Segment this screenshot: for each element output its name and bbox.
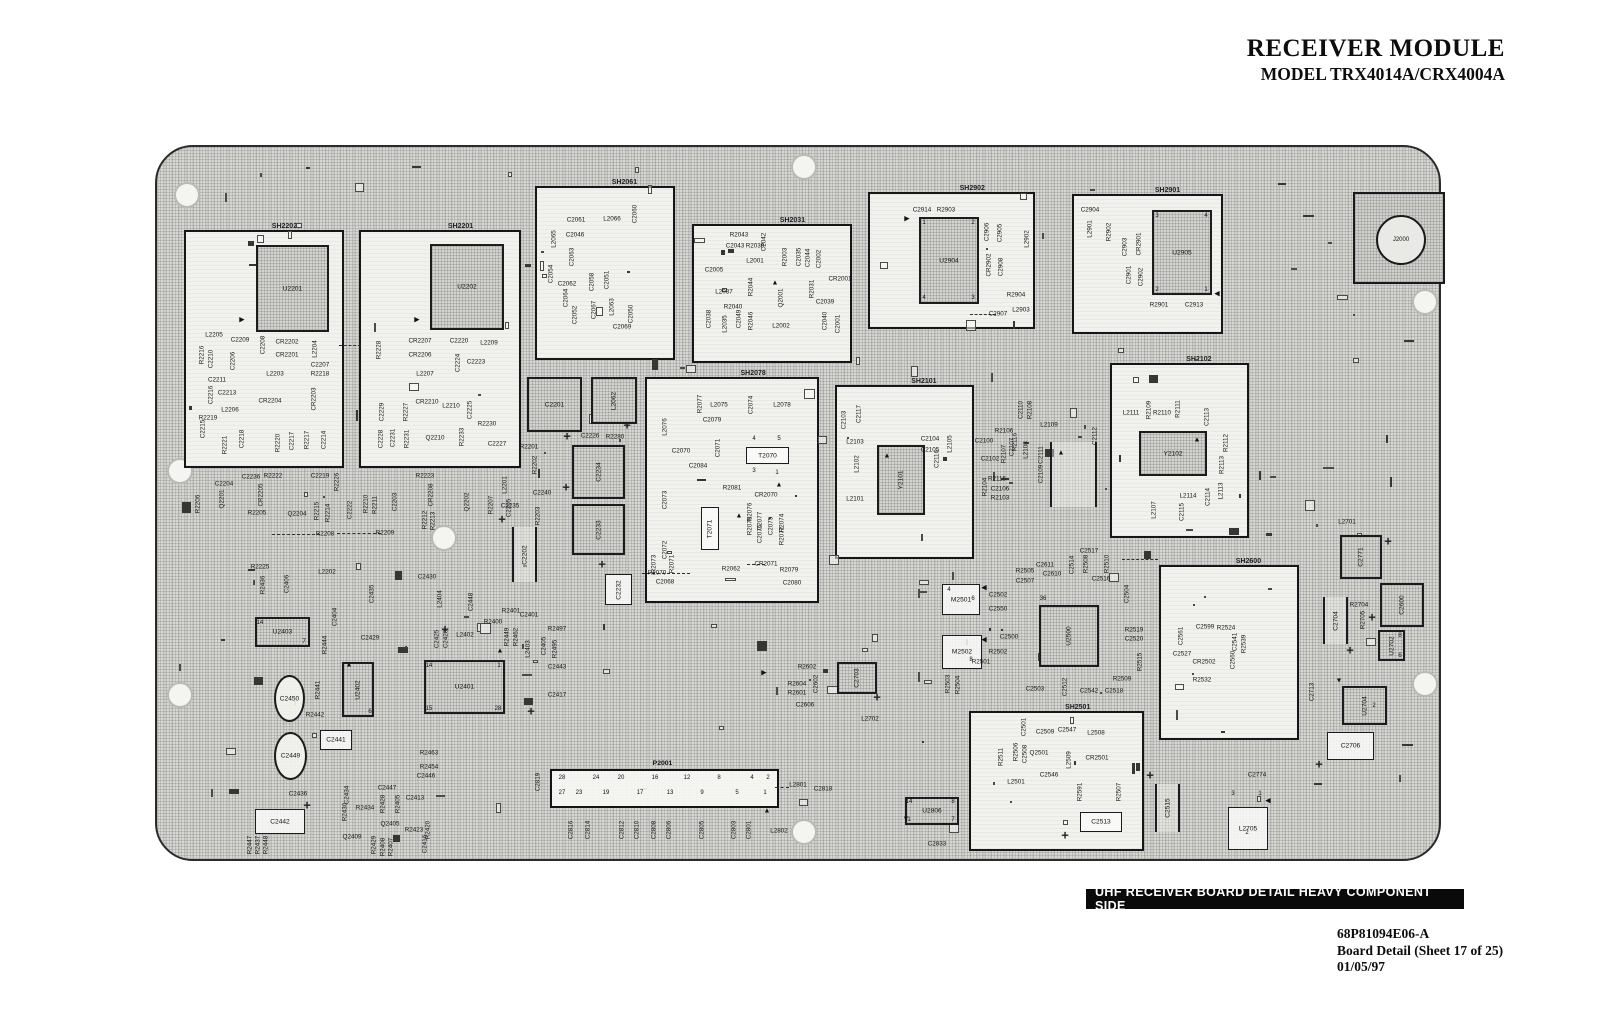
part-outline xyxy=(919,580,929,585)
label-c2213: C2213 xyxy=(218,390,237,397)
orientation-mark: ◀ xyxy=(1214,291,1219,298)
C2232-outline: C2232 xyxy=(605,574,632,605)
label-c2517: C2517 xyxy=(1080,548,1099,555)
label-r2201: R2201 xyxy=(520,444,539,451)
label-c2236: C2236 xyxy=(242,474,261,481)
label-l2105: L2105 xyxy=(947,435,954,453)
label-cr2501: CR2501 xyxy=(1085,755,1108,762)
label-l2203: L2203 xyxy=(266,371,284,378)
part-outline xyxy=(374,323,376,332)
label-c2441: C2441 xyxy=(326,737,345,744)
pin-number: 4 xyxy=(752,436,755,442)
pin-number: 27 xyxy=(559,790,566,796)
label-l2111: L2111 xyxy=(1123,410,1140,417)
part-outline xyxy=(260,173,262,177)
label-c2043: C2043 xyxy=(726,243,745,250)
label-r2444: R2444 xyxy=(322,636,329,655)
pin-number: 8 xyxy=(951,799,954,805)
label-c2406: C2406 xyxy=(284,575,291,594)
polarity-mark: + xyxy=(1368,610,1376,625)
part-outline xyxy=(1259,471,1261,480)
part-outline xyxy=(921,534,923,541)
label-c2240: C2240 xyxy=(533,490,552,497)
orientation-mark: ▲ xyxy=(1194,437,1201,444)
dashed-trace xyxy=(272,534,320,535)
label-r2031: R2031 xyxy=(809,280,816,299)
label-r2519: R2519 xyxy=(1125,627,1144,634)
part-outline xyxy=(1136,763,1140,771)
label-r2217: R2217 xyxy=(304,431,311,450)
part-outline xyxy=(1144,551,1152,559)
label-r2046: R2046 xyxy=(748,312,755,331)
polarity-mark: + xyxy=(598,557,606,572)
part-outline xyxy=(719,726,723,731)
label-r2904: R2904 xyxy=(1007,292,1026,299)
label-c2512: C2512 xyxy=(1062,678,1069,697)
part-outline xyxy=(1186,529,1193,531)
label-c2042: C2042 xyxy=(761,233,768,252)
label-c2542: C2542 xyxy=(1080,688,1099,695)
label-c2442: C2442 xyxy=(270,818,289,825)
label-c2049: C2049 xyxy=(736,310,743,329)
label-r2106: R2106 xyxy=(995,428,1014,435)
label-r2215: R2215 xyxy=(314,502,321,521)
label-l2403: L2403 xyxy=(525,640,532,658)
part-outline xyxy=(757,641,767,650)
label-r2524: R2524 xyxy=(1217,625,1236,632)
label-r2207: R2207 xyxy=(488,496,495,515)
pin-number: 1 xyxy=(763,790,766,796)
label-c2527: C2527 xyxy=(1173,651,1192,658)
part-outline xyxy=(911,366,918,377)
label-c2100: C2100 xyxy=(975,438,994,445)
label-q2501: Q2501 xyxy=(1030,750,1049,757)
part-outline xyxy=(804,389,814,398)
label-c2233: C2233 xyxy=(595,520,602,539)
label-q2409: Q2409 xyxy=(343,834,362,841)
label-l2114: L2114 xyxy=(1179,493,1196,500)
label-l2103: L2103 xyxy=(846,439,864,446)
pin-number: 13 xyxy=(667,790,674,796)
part-outline xyxy=(544,452,546,454)
mounting-hole xyxy=(1412,671,1438,697)
shield-label: SH2600 xyxy=(1236,558,1261,565)
label-c2210: C2210 xyxy=(208,350,215,369)
part-outline xyxy=(697,479,706,481)
dashed-trace xyxy=(339,345,361,346)
label-r2428: R2428 xyxy=(380,795,387,814)
label-c2102: C2102 xyxy=(981,456,1000,463)
label-r2081: R2081 xyxy=(723,485,742,492)
shield-label: SH2202 xyxy=(272,223,297,230)
label-r2601: R2601 xyxy=(788,690,807,697)
part-outline xyxy=(304,492,308,498)
label-cr2207: CR2207 xyxy=(408,338,431,345)
orientation-mark: ▲ xyxy=(497,648,504,655)
label-l2037: L2037 xyxy=(715,289,733,296)
shield-label: SH2031 xyxy=(780,217,805,224)
caption-bar: UHF RECEIVER BOARD DETAIL HEAVY COMPONEN… xyxy=(1086,889,1464,909)
C2201-outline: C2201 xyxy=(527,377,582,432)
part-outline xyxy=(1090,189,1096,191)
orientation-mark: ▶ xyxy=(239,317,244,324)
label-l2065: L2065 xyxy=(551,230,558,248)
part-outline xyxy=(1303,215,1314,217)
label-t2071: T2071 xyxy=(707,519,714,538)
part-outline xyxy=(635,167,639,173)
label-c2901: C2901 xyxy=(1126,266,1133,285)
label-c2229: C2229 xyxy=(379,403,386,422)
pin-number: 28 xyxy=(495,706,502,712)
part-outline xyxy=(1266,533,1272,536)
label-r2216: R2216 xyxy=(199,346,206,365)
part-outline xyxy=(306,167,309,169)
C2513-outline: C2513 xyxy=(1080,812,1122,832)
pin-number: 3 xyxy=(1231,791,1234,797)
polarity-mark: + xyxy=(1384,534,1392,549)
part-outline xyxy=(226,748,236,754)
label-r2104: R2104 xyxy=(982,478,989,497)
part-outline xyxy=(652,359,658,370)
label-c2904: C2904 xyxy=(1081,207,1100,214)
part-outline xyxy=(1239,494,1241,498)
U2500-outline: U2500 xyxy=(1039,605,1099,667)
C2600-outline: C2600 xyxy=(1380,583,1424,627)
part-outline xyxy=(1268,588,1272,590)
C2202-outline: C2202 xyxy=(512,527,537,582)
pin-number: 4 xyxy=(750,775,753,781)
label-c2771: C2771 xyxy=(1358,547,1365,566)
pin-number: 1 xyxy=(922,220,925,226)
pin-number: 24 xyxy=(593,775,600,781)
pin-number: 8 xyxy=(1398,633,1401,639)
label-c2079: C2079 xyxy=(703,417,722,424)
label-c2050: C2050 xyxy=(628,305,635,324)
part-outline xyxy=(254,677,263,685)
label-r2203: R2203 xyxy=(535,507,542,526)
label-r2206: R2206 xyxy=(195,495,202,514)
part-outline xyxy=(412,166,421,168)
label-q2202: Q2202 xyxy=(464,493,471,512)
mounting-hole xyxy=(791,819,817,845)
label-c2228: C2228 xyxy=(378,430,385,449)
part-outline xyxy=(1328,242,1332,244)
antenna-jack-outline: J2000 xyxy=(1353,192,1445,284)
label-c2703: C2703 xyxy=(854,668,861,687)
label-c2235: C2235 xyxy=(501,503,520,510)
label-r2508: R2508 xyxy=(1083,555,1090,574)
part-outline xyxy=(880,262,888,269)
label-c2416: C2416 xyxy=(422,835,429,854)
label-r2430: R2430 xyxy=(342,803,349,822)
label-c2547: C2547 xyxy=(1058,727,1077,734)
part-outline xyxy=(189,406,192,410)
label-r2222: R2222 xyxy=(264,473,283,480)
label-r2405: R2405 xyxy=(395,795,402,814)
label-r2423: R2423 xyxy=(405,827,424,834)
pin-number: 5 xyxy=(735,790,738,796)
part-outline xyxy=(818,436,827,444)
part-outline xyxy=(1404,340,1414,342)
label-c2206: C2206 xyxy=(230,352,237,371)
label-r2210: R2210 xyxy=(363,495,370,514)
part-outline xyxy=(1074,761,1076,765)
label-c2218: C2218 xyxy=(239,430,246,449)
label-c2907: C2907 xyxy=(989,311,1008,318)
label-l2066: L2066 xyxy=(603,216,621,223)
part-outline xyxy=(1291,268,1297,270)
pin-number: 6 xyxy=(1398,653,1401,659)
label-u2500: U2500 xyxy=(1066,626,1073,645)
label-l2062: L2062 xyxy=(611,391,618,409)
part-outline xyxy=(356,410,358,420)
label-r2504: R2504 xyxy=(955,676,962,695)
part-outline xyxy=(1084,425,1086,428)
part-outline xyxy=(603,624,605,631)
label-r2205: R2205 xyxy=(248,510,267,517)
label-l2902: L2902 xyxy=(1024,230,1031,248)
pin-number: 20 xyxy=(618,775,625,781)
label-c2001: C2001 xyxy=(835,315,842,334)
part-outline xyxy=(253,580,255,585)
orientation-mark: ▲ xyxy=(776,482,783,489)
pin-number: 2 xyxy=(971,220,974,226)
part-outline xyxy=(229,789,239,794)
label-u2806: U2806 xyxy=(922,808,941,815)
label-c2501: C2501 xyxy=(1021,718,1028,737)
pin-number: 23 xyxy=(576,790,583,796)
label-q2405: Q2405 xyxy=(381,821,400,828)
label-c2902: C2902 xyxy=(1138,268,1145,287)
label-l2702: L2702 xyxy=(861,716,879,723)
label-l2108: L2108 xyxy=(1023,441,1030,459)
part-outline xyxy=(627,271,630,273)
label-c2231: C2231 xyxy=(390,429,397,448)
part-outline xyxy=(182,502,191,513)
label-m2501: M2501 xyxy=(951,596,971,603)
label-c2115: C2115 xyxy=(1179,503,1186,521)
orientation-mark: ▼ xyxy=(1336,678,1343,685)
page-title: RECEIVER MODULE xyxy=(1247,36,1505,62)
orientation-mark: ▲ xyxy=(764,808,771,815)
shield-label: SH2078 xyxy=(741,370,766,377)
label-cr2202: CR2202 xyxy=(275,339,298,346)
label-c2435: C2435 xyxy=(369,585,376,604)
orientation-mark: ▶ xyxy=(414,317,419,324)
polarity-mark: + xyxy=(623,418,631,433)
pin-number: 1 xyxy=(1258,791,1261,797)
part-outline xyxy=(248,241,254,246)
C2704-outline: C2704 xyxy=(1323,597,1348,644)
orientation-mark: ▶ xyxy=(904,216,909,223)
antenna-jack-j2000: J2000 xyxy=(1376,215,1426,265)
label-r2228: R2228 xyxy=(376,341,383,360)
part-outline xyxy=(1118,348,1124,353)
label-c2211: C2211 xyxy=(208,377,226,384)
label-r2075: R2075 xyxy=(747,517,754,536)
pin-number: 2 xyxy=(1245,830,1248,836)
label-c2073: C2073 xyxy=(662,491,669,510)
label-r2495: R2495 xyxy=(552,640,559,659)
label-l2210: L2210 xyxy=(442,403,460,410)
part-outline xyxy=(496,803,501,813)
label-c2035: C2035 xyxy=(796,248,803,267)
part-outline xyxy=(603,669,610,674)
label-q2201: Q2201 xyxy=(219,490,226,509)
label-c2430: C2430 xyxy=(418,574,437,581)
part-outline xyxy=(1013,321,1015,329)
U2905-outline: U2905 xyxy=(1152,210,1212,295)
part-outline xyxy=(1042,233,1044,238)
orientation-mark: ▲ xyxy=(736,513,743,520)
label-r2501: R2501 xyxy=(972,659,991,666)
label-c2508: C2508 xyxy=(1022,745,1029,764)
label-r2705: R2705 xyxy=(1360,611,1367,630)
pin-number: 6 xyxy=(368,709,371,715)
label-c2518: C2518 xyxy=(1105,688,1124,695)
label-r2602: R2602 xyxy=(798,664,817,671)
part-outline xyxy=(538,469,540,478)
label-c2502: C2502 xyxy=(989,592,1008,599)
label-c2413: C2413 xyxy=(406,795,425,802)
part-outline xyxy=(1020,193,1027,201)
pin-number: 8 xyxy=(969,657,972,663)
part-outline xyxy=(312,733,318,738)
label-c2054: C2054 xyxy=(548,265,555,284)
part-outline xyxy=(409,383,419,392)
label-c2516: C2516 xyxy=(1092,576,1111,583)
label-c2443: C2443 xyxy=(548,664,567,671)
label-r2062: R2062 xyxy=(722,566,741,573)
part-outline xyxy=(949,824,959,833)
label-r2400: R2400 xyxy=(484,619,503,626)
label-l2101: L2101 xyxy=(846,496,864,503)
part-outline xyxy=(993,782,995,786)
label-c2810: C2810 xyxy=(634,821,641,840)
label-r2462: R2462 xyxy=(513,628,520,647)
part-outline xyxy=(918,672,920,681)
label-r2220: R2220 xyxy=(275,434,282,453)
sheet-page: RECEIVER MODULE MODEL TRX4014A/CRX4004A … xyxy=(0,0,1600,1032)
label-l2901: L2901 xyxy=(1087,220,1094,238)
part-outline xyxy=(1337,295,1348,300)
part-outline xyxy=(1221,731,1224,733)
part-outline xyxy=(405,646,407,648)
label-c2448: C2448 xyxy=(468,593,475,612)
label-c2046: C2046 xyxy=(566,232,585,239)
label-y2101: Y2101 xyxy=(898,470,905,489)
label-l2035: L2035 xyxy=(722,315,729,333)
part-outline xyxy=(1323,467,1334,469)
part-outline xyxy=(288,231,292,239)
pin-number: 2 xyxy=(1155,287,1158,293)
orientation-mark: ◀ xyxy=(981,585,986,592)
label-r2072: R2072 xyxy=(779,527,786,546)
label-l2205: L2205 xyxy=(205,332,223,339)
pin-number: 4 xyxy=(947,587,950,593)
part-outline xyxy=(522,674,532,676)
part-outline xyxy=(648,185,652,193)
label-c2080: C2080 xyxy=(783,580,802,587)
label-c2513: C2513 xyxy=(1091,819,1110,826)
label-c2222: C2222 xyxy=(347,501,354,520)
label-r2109: R2109 xyxy=(1146,401,1153,420)
label-c2906: C2906 xyxy=(984,223,991,242)
part-outline xyxy=(721,250,725,254)
label-q2001: Q2001 xyxy=(778,289,785,308)
orientation-mark: ▲ xyxy=(1058,450,1065,457)
label-c2428: C2428 xyxy=(443,630,450,649)
title-block: RECEIVER MODULE MODEL TRX4014A/CRX4004A xyxy=(1247,36,1505,86)
label-r2208: R2208 xyxy=(316,531,335,538)
part-outline xyxy=(542,274,547,278)
footer-date: 01/05/97 xyxy=(1337,959,1503,976)
label-c2209: C2209 xyxy=(231,337,250,344)
C2442-outline: C2442 xyxy=(255,809,305,834)
label-c2116: C2116 xyxy=(934,450,941,468)
part-outline xyxy=(952,572,954,579)
label-q2210: Q2210 xyxy=(426,435,445,442)
label-c2225: C2225 xyxy=(467,401,474,420)
label-c2611: C2611 xyxy=(1036,562,1054,569)
shield-label: SH2501 xyxy=(1065,704,1090,711)
label-l2202: L2202 xyxy=(318,569,336,576)
pin-number: 8 xyxy=(717,775,720,781)
part-outline xyxy=(1070,717,1075,724)
polarity-mark: + xyxy=(1315,757,1323,772)
part-outline xyxy=(919,591,927,593)
label-cr2070: CR2070 xyxy=(754,492,777,499)
label-r2107: R2107 xyxy=(1001,445,1008,464)
label-r2116: R2116 xyxy=(1012,433,1019,451)
part-outline xyxy=(508,172,512,178)
polarity-mark: + xyxy=(873,690,881,705)
part-outline xyxy=(1305,500,1315,511)
T2070-outline: T2070 xyxy=(746,447,789,464)
label-u2403: U2403 xyxy=(273,629,292,636)
part-outline xyxy=(986,248,988,250)
pin-number: 28 xyxy=(559,775,566,781)
label-r2103: R2103 xyxy=(991,495,1010,502)
label-t2070: T2070 xyxy=(758,452,777,459)
C2771-outline: C2771 xyxy=(1340,535,1382,579)
label-c2208: C2208 xyxy=(260,336,267,355)
pin-number: 7 xyxy=(302,639,305,645)
label-r2112: R2112 xyxy=(1223,434,1230,452)
label-l2509: L2509 xyxy=(1066,751,1073,769)
part-outline xyxy=(1010,801,1012,803)
label-c2599: C2599 xyxy=(1196,624,1215,631)
pin-number: 12 xyxy=(684,775,691,781)
polarity-mark: + xyxy=(527,704,535,719)
T2071-outline: T2071 xyxy=(701,507,719,550)
label-r2434: R2434 xyxy=(356,805,375,812)
part-outline xyxy=(225,193,227,202)
pin-number: 17 xyxy=(637,790,644,796)
label-c2207: C2207 xyxy=(311,362,330,369)
part-outline xyxy=(680,367,685,369)
label-c2068: C2068 xyxy=(656,579,675,586)
part-outline xyxy=(1316,524,1318,528)
part-outline xyxy=(1366,638,1376,646)
label-r2213: R2213 xyxy=(430,512,437,531)
label-c2113: C2113 xyxy=(1204,408,1211,426)
part-outline xyxy=(1229,528,1239,535)
part-outline xyxy=(924,680,932,683)
C2441-outline: C2441 xyxy=(320,730,352,750)
label-c2446: C2446 xyxy=(417,773,436,780)
pin-number: 3 xyxy=(971,295,974,301)
